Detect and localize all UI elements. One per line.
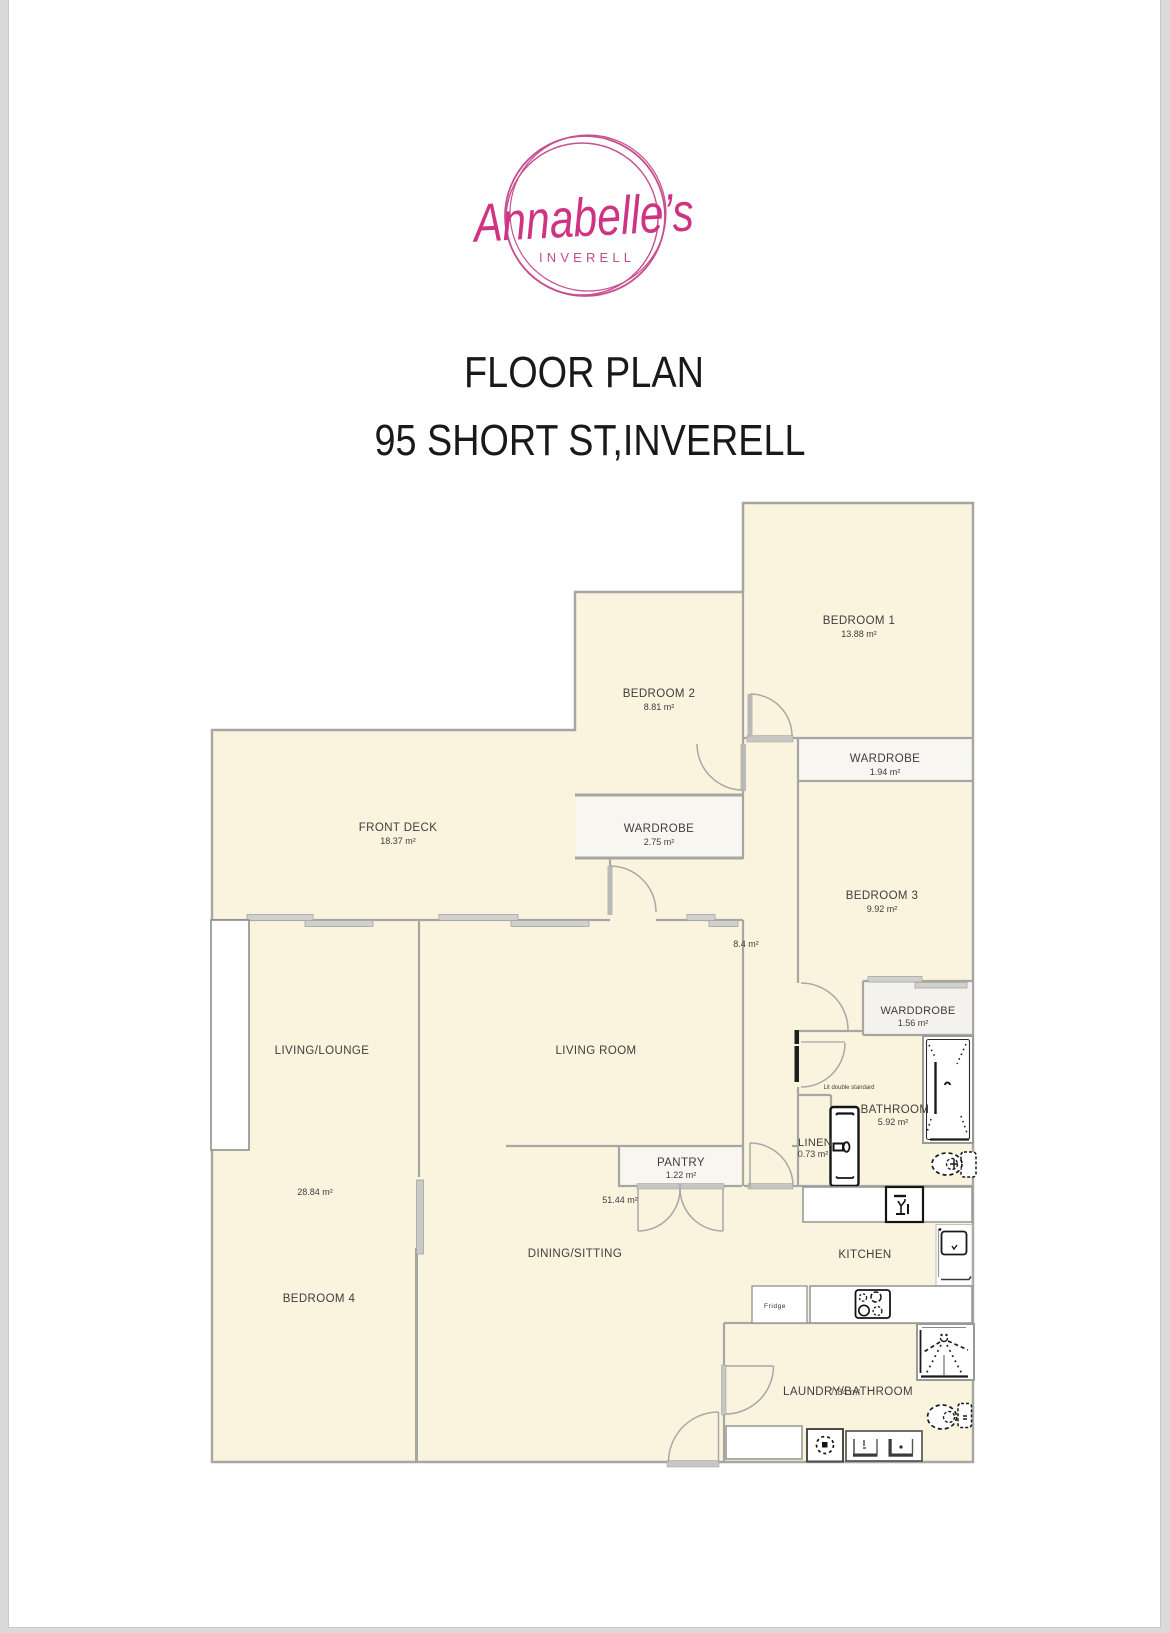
svg-text:8.81 m²: 8.81 m²	[644, 702, 675, 712]
svg-text:5.92 m²: 5.92 m²	[878, 1117, 909, 1127]
svg-text:2.75 m²: 2.75 m²	[644, 837, 675, 847]
svg-text:9.92 m²: 9.92 m²	[867, 904, 898, 914]
svg-text:WARDDROBE: WARDDROBE	[880, 1005, 955, 1017]
svg-text:1.56 m²: 1.56 m²	[898, 1018, 929, 1028]
svg-text:7.84 m²: 7.84 m²	[830, 1387, 861, 1397]
svg-text:Fridge: Fridge	[764, 1303, 786, 1310]
svg-text:BEDROOM 4: BEDROOM 4	[283, 1293, 356, 1305]
svg-text:51.44 m²: 51.44 m²	[602, 1195, 638, 1205]
svg-text:FRONT DECK: FRONT DECK	[359, 822, 438, 834]
svg-text:LINEN: LINEN	[798, 1137, 832, 1149]
svg-text:Annabelle’s: Annabelle’s	[470, 182, 695, 254]
svg-text:13.88 m²: 13.88 m²	[841, 629, 877, 639]
svg-text:KITCHEN: KITCHEN	[838, 1249, 891, 1261]
svg-text:0.73 m²: 0.73 m²	[798, 1149, 829, 1159]
svg-text:BATHROOM: BATHROOM	[861, 1104, 930, 1116]
svg-text:PANTRY: PANTRY	[657, 1157, 705, 1169]
svg-text:DINING/SITTING: DINING/SITTING	[528, 1248, 622, 1260]
svg-text:WARDROBE: WARDROBE	[624, 823, 695, 835]
svg-text:LIVING ROOM: LIVING ROOM	[555, 1045, 636, 1057]
svg-text:BEDROOM 3: BEDROOM 3	[846, 890, 919, 902]
svg-text:1.94 m²: 1.94 m²	[870, 767, 901, 777]
svg-text:FLOOR PLAN: FLOOR PLAN	[464, 348, 704, 397]
svg-text:95 SHORT ST,INVERELL: 95 SHORT ST,INVERELL	[375, 416, 806, 465]
svg-text:WARDROBE: WARDROBE	[850, 753, 921, 765]
svg-text:Lit double standard: Lit double standard	[823, 1085, 874, 1091]
svg-text:INVERELL: INVERELL	[539, 250, 631, 265]
svg-text:18.37 m²: 18.37 m²	[380, 836, 416, 846]
svg-text:8.4 m²: 8.4 m²	[733, 939, 759, 949]
svg-text:28.84 m²: 28.84 m²	[297, 1187, 333, 1197]
svg-text:BEDROOM 1: BEDROOM 1	[823, 615, 896, 627]
svg-text:BEDROOM 2: BEDROOM 2	[623, 688, 696, 700]
svg-text:1.22 m²: 1.22 m²	[666, 1170, 697, 1180]
svg-text:LIVING/LOUNGE: LIVING/LOUNGE	[275, 1045, 370, 1057]
